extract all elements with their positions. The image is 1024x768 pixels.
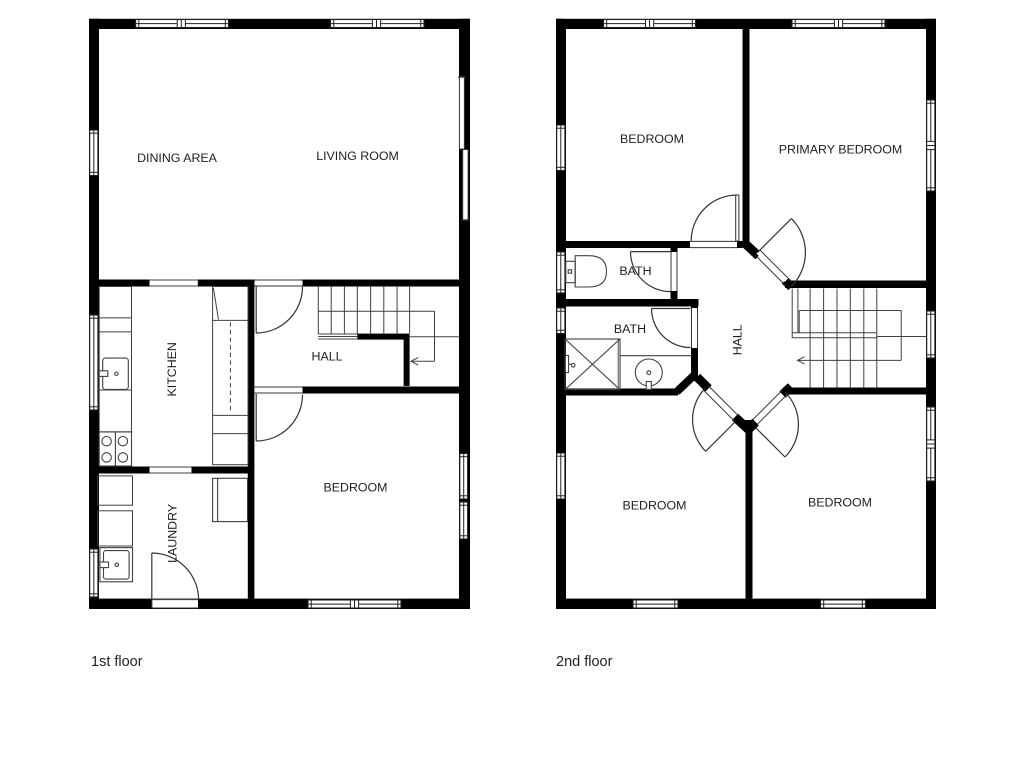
- svg-text:2nd floor: 2nd floor: [556, 654, 613, 670]
- svg-text:BEDROOM: BEDROOM: [323, 481, 387, 495]
- svg-text:HALL: HALL: [731, 324, 745, 355]
- svg-text:BEDROOM: BEDROOM: [622, 499, 686, 513]
- svg-text:BEDROOM: BEDROOM: [808, 496, 872, 510]
- svg-text:KITCHEN: KITCHEN: [165, 342, 179, 396]
- svg-text:PRIMARY BEDROOM: PRIMARY BEDROOM: [779, 143, 902, 157]
- svg-text:BATH: BATH: [614, 322, 646, 336]
- svg-text:DINING AREA: DINING AREA: [137, 151, 218, 165]
- svg-text:HALL: HALL: [312, 350, 343, 364]
- svg-text:BEDROOM: BEDROOM: [620, 132, 684, 146]
- svg-text:LIVING ROOM: LIVING ROOM: [316, 149, 399, 163]
- svg-text:BATH: BATH: [619, 264, 651, 278]
- svg-text:LAUNDRY: LAUNDRY: [165, 504, 179, 563]
- svg-text:1st floor: 1st floor: [91, 654, 143, 670]
